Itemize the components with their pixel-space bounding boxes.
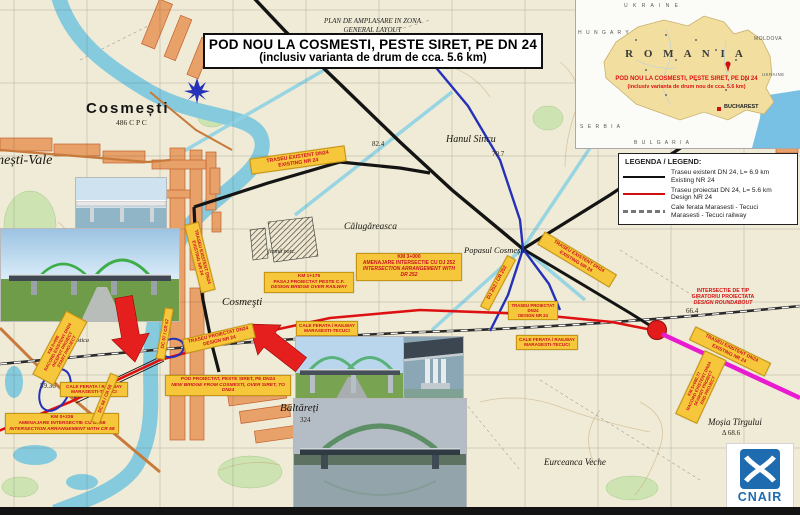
inset-bulgaria: B U L G A R I A xyxy=(634,140,691,146)
bridge-render-wide-left-art xyxy=(1,229,179,321)
bridge-render-arches xyxy=(295,336,405,400)
place-ferma-porc: fermă porc. xyxy=(268,249,296,255)
plan-title: POD NOU LA COSMESTI, PESTE SIRET, PE DN … xyxy=(205,37,541,52)
legend-swatch-railway xyxy=(623,210,665,213)
place-baltareti: Băltăreți xyxy=(280,402,319,414)
sheet-bottom-border xyxy=(0,507,800,515)
bridge-render-wide-left xyxy=(0,228,180,322)
legend-label: Cale ferata Marasesti - Tecuci xyxy=(671,204,758,212)
elevation-82: 82.4 xyxy=(372,140,384,148)
bucharest-marker xyxy=(717,107,721,111)
callout-line: INTERSECTION ARRANGEMENT WITH CR 58 xyxy=(8,427,116,433)
callout-line: POD PROIECTAT, PESTE SIRET, PE DN24 xyxy=(168,377,288,383)
inset-moldova: MOLDOVA xyxy=(754,36,782,42)
callout-roundabout: INTERSECTIE DE TIP GIRATORIU PROIECTATA … xyxy=(690,288,756,307)
callout-km3000-intersection: KM 3+000 AMENAJARE INTERSECTIE CU DJ 252… xyxy=(356,253,462,281)
bridge-render-piers xyxy=(403,336,464,400)
callout-line: DESIGN NR 24 xyxy=(511,313,555,318)
legend-item-projected: Traseu proiectat DN 24, L= 5.6 km Design… xyxy=(623,187,793,202)
inset-hungary: H U N G A R Y xyxy=(578,30,630,36)
plan-subtitle: PLAN DE AMPLASARE IN ZONA GENERAL LAYOUT xyxy=(200,17,545,35)
cnair-logo-text: CNAIR xyxy=(727,490,793,504)
bridge-render-arches-art xyxy=(296,337,404,399)
callout-projected-dn24-right: TRASEU PROIECTAT DN24 DESIGN NR 24 xyxy=(508,301,558,320)
place-cosmesti-town: Cosmești xyxy=(86,100,170,117)
romania-inset-map: U K R A I N E H U N G A R Y MOLDOVA UKRA… xyxy=(575,0,800,149)
place-mosia-tirgului: Moșia Tîrgului xyxy=(708,417,762,427)
inset-capital-label: BUCHAREST xyxy=(724,104,759,110)
bridge-render-piers-art xyxy=(404,337,463,399)
bridge-render-small-left-art xyxy=(76,178,166,229)
legend-title: LEGENDA / LEGEND: xyxy=(625,157,793,166)
callout-line: MARASESTI-TECUCI xyxy=(519,342,575,347)
inset-note-line2: (inclusiv varianta de drum nou de cca. 5… xyxy=(584,84,789,91)
callout-line: DESIGN ROUNDABOUT xyxy=(690,300,756,306)
legend-label: Existing NR 24 xyxy=(671,177,769,185)
inset-project-note: POD NOU LA COSMESTI, PESTE SIRET, PE DN … xyxy=(584,76,789,90)
elevation-70: 70.7 xyxy=(492,150,504,158)
legend-swatch-projected xyxy=(623,193,665,195)
plan-subtitle-line1: PLAN DE AMPLASARE IN ZONA xyxy=(200,17,545,26)
inset-country-name: R O M A N I A xyxy=(611,48,761,60)
bridge-render-small-left xyxy=(75,177,167,230)
callout-railway-right: CALE FERATA / RAILWAY MARASESTI-TECUCI xyxy=(516,335,578,350)
callout-railway-mid: CALE FERATA / RAILWAY MARASESTI-TECUCI xyxy=(296,321,358,336)
place-calugareasca: Călugăreasca xyxy=(344,222,397,232)
callout-line: TRASEU PROIECTAT DN24 xyxy=(511,303,555,313)
inset-note-line1: POD NOU LA COSMESTI, PESTE SIRET, PE DN … xyxy=(584,76,789,84)
legend-box: LEGENDA / LEGEND: Traseu existent DN 24,… xyxy=(618,153,798,225)
plan-sheet: Cosmești 486 C P C mești-Vale Cosmeşti B… xyxy=(0,0,800,515)
callout-line: INTERSECTION ARRANGEMENT WITH DR 252 xyxy=(359,267,459,279)
bridge-render-large-bottom-art xyxy=(294,399,466,513)
place-cosmesti-code: 486 C P C xyxy=(116,118,147,127)
callout-line: MARASESTI-TECUCI xyxy=(299,328,355,333)
legend-label: Marasesti - Tecuci railway xyxy=(671,212,758,220)
cnair-logo-icon xyxy=(740,449,780,489)
place-eurceanca-veche: Eurceanca Veche xyxy=(544,457,606,467)
place-mosia-elev: Δ 68.6 xyxy=(722,429,740,437)
legend-item-existing: Traseu existent DN 24, L= 6.9 km Existin… xyxy=(623,169,793,184)
callout-new-bridge: POD PROIECTAT, PESTE SIRET, PE DN24 NEW … xyxy=(165,375,291,396)
legend-swatch-existing xyxy=(623,176,665,178)
place-cosmesti-village: Cosmeşti xyxy=(222,296,262,308)
callout-line: MARASESTI-TECUCI xyxy=(63,389,125,394)
bridge-render-large-bottom xyxy=(293,398,467,514)
place-popasul-cosmesti: Popasul Cosmești xyxy=(464,245,525,255)
legend-label: Traseu existent DN 24, L= 6.9 km xyxy=(671,169,769,177)
plan-title-sub: (inclusiv varianta de drum de cca. 5.6 k… xyxy=(205,52,541,64)
legend-item-railway: Cale ferata Marasesti - Tecuci Marasesti… xyxy=(623,204,793,219)
plan-title-box: POD NOU LA COSMESTI, PESTE SIRET, PE DN … xyxy=(203,33,543,69)
callout-line: DESIGN BRIDGE OVER RAILWAY xyxy=(267,285,351,291)
inset-ukraine-top: U K R A I N E xyxy=(624,3,680,9)
legend-label: Traseu proiectat DN 24, L= 5.6 km xyxy=(671,187,772,195)
inset-serbia: S E R B I A xyxy=(580,124,622,130)
callout-railway-left: CALE FERATA / RAILWAY MARASESTI-TECUCI xyxy=(60,382,128,397)
place-cosmesti-vale: mești-Vale xyxy=(0,153,52,169)
legend-label: Design NR 24 xyxy=(671,194,772,202)
cnair-logo: CNAIR xyxy=(726,443,794,511)
callout-line: NEW BRIDGE FROM COSMESTI, OVER SIRET, TO… xyxy=(168,383,288,394)
place-hanul-sincu: Hanul Sincu xyxy=(446,134,496,145)
elevation-66: 66.4 xyxy=(686,307,698,315)
callout-railway-overpass: KM 1+175 PASAJ PROIECTAT PESTE C.F. DESI… xyxy=(264,272,354,293)
place-baltareti-elev: 324 xyxy=(300,416,311,424)
